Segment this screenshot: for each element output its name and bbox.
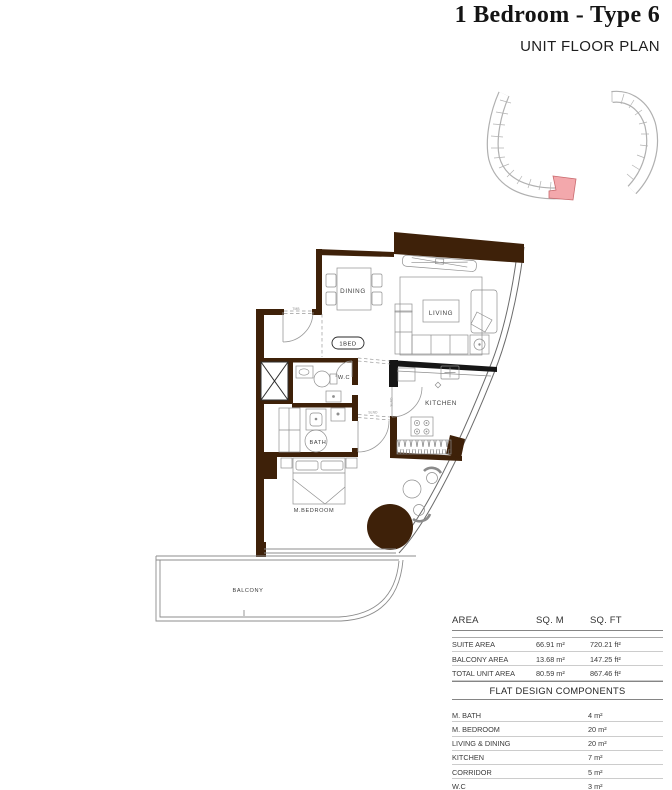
row-value: 20 m² [588,739,663,748]
row-label: LIVING & DINING [452,739,588,748]
row-label: BALCONY AREA [452,655,536,664]
row-sqft: 147.25 ft² [590,655,663,664]
row-sqm: 66.91 m² [536,640,590,649]
row-value: 7 m² [588,753,663,762]
components-table-title: FLAT DESIGN COMPONENTS [452,681,663,700]
row-label: W.C [452,782,588,790]
wc-label: W.C [338,375,350,381]
stove-icon [411,417,433,436]
table-row: BALCONY AREA 13.68 m² 147.25 ft² [452,652,663,666]
page-title: 1 Bedroom - Type 6 [455,2,660,29]
floor-plan: TMB SLND SLND DINING LIVING KITCHEN W.C … [140,218,544,630]
area-table-header: AREA SQ. M SQ. FT [452,615,663,631]
components-table: FLAT DESIGN COMPONENTS M. BATH 4 m² M. B… [452,681,663,790]
row-value: 4 m² [588,711,663,720]
balcony-outline [156,556,416,621]
header: 1 Bedroom - Type 6 UNIT FLOOR PLAN [455,2,660,55]
toilet-icon [314,371,330,387]
area-table-divider [452,631,663,638]
table-row: KITCHEN 7 m² [452,751,663,765]
bath-label: BATH [310,440,327,446]
table-row: W.C 3 m² [452,779,663,790]
dining-label: DINING [340,288,366,295]
table-row: TOTAL UNIT AREA 80.59 m² 867.46 ft² [452,666,663,680]
round-table-set [403,468,441,521]
nightstand [346,458,357,468]
col-header-sqft: SQ. FT [590,615,663,626]
row-sqft: 867.46 ft² [590,669,663,678]
row-label: M. BATH [452,711,588,720]
wc-fixtures [296,366,341,402]
bed [293,458,345,504]
table-row: LIVING & DINING 20 m² [452,737,663,751]
page-subtitle: UNIT FLOOR PLAN [455,38,660,55]
table-row: M. BATH 4 m² [452,708,663,722]
key-plan-right-wing [612,91,652,190]
unit-type-tag: 1BED [332,337,364,349]
row-sqm: 80.59 m² [536,669,590,678]
structural-column [367,504,413,550]
living-label: LIVING [429,310,453,317]
bottom-facade-line [264,549,396,553]
col-header-area: AREA [452,615,536,626]
row-label: SUITE AREA [452,640,536,649]
bedroom-label: M.BEDROOM [294,508,335,514]
kitchen-label: KITCHEN [425,400,457,407]
kitchen-counter [397,440,451,454]
row-sqm: 13.68 m² [536,655,590,664]
row-label: TOTAL UNIT AREA [452,669,536,678]
entry-door-tag: TMB [292,307,299,311]
row-value: 20 m² [588,725,663,734]
table-row: SUITE AREA 66.91 m² 720.21 ft² [452,638,663,652]
kitchen-door-tag: SLND [390,397,394,407]
row-label: KITCHEN [452,753,588,762]
services-shaft [261,362,288,400]
row-value: 3 m² [588,782,663,790]
table-row: M. BEDROOM 20 m² [452,722,663,736]
table-row: CORRIDOR 5 m² [452,765,663,779]
bedroom-furniture [281,458,357,504]
row-sqft: 720.21 ft² [590,640,663,649]
row-label: M. BEDROOM [452,725,588,734]
row-label: CORRIDOR [452,768,588,777]
nightstand [281,458,292,468]
unit-floor-plan-page: 1 Bedroom - Type 6 UNIT FLOOR PLAN [0,0,672,790]
wc-sink-icon [296,366,313,378]
row-value: 5 m² [588,768,663,777]
corridor-door-tag: SLND [368,411,378,415]
balcony-label: BALCONY [233,588,264,594]
building-key-plan [475,85,667,207]
unit-tag-text: 1BED [339,342,356,348]
area-table: AREA SQ. M SQ. FT SUITE AREA 66.91 m² 72… [452,615,663,681]
col-header-sqm: SQ. M [536,615,590,626]
